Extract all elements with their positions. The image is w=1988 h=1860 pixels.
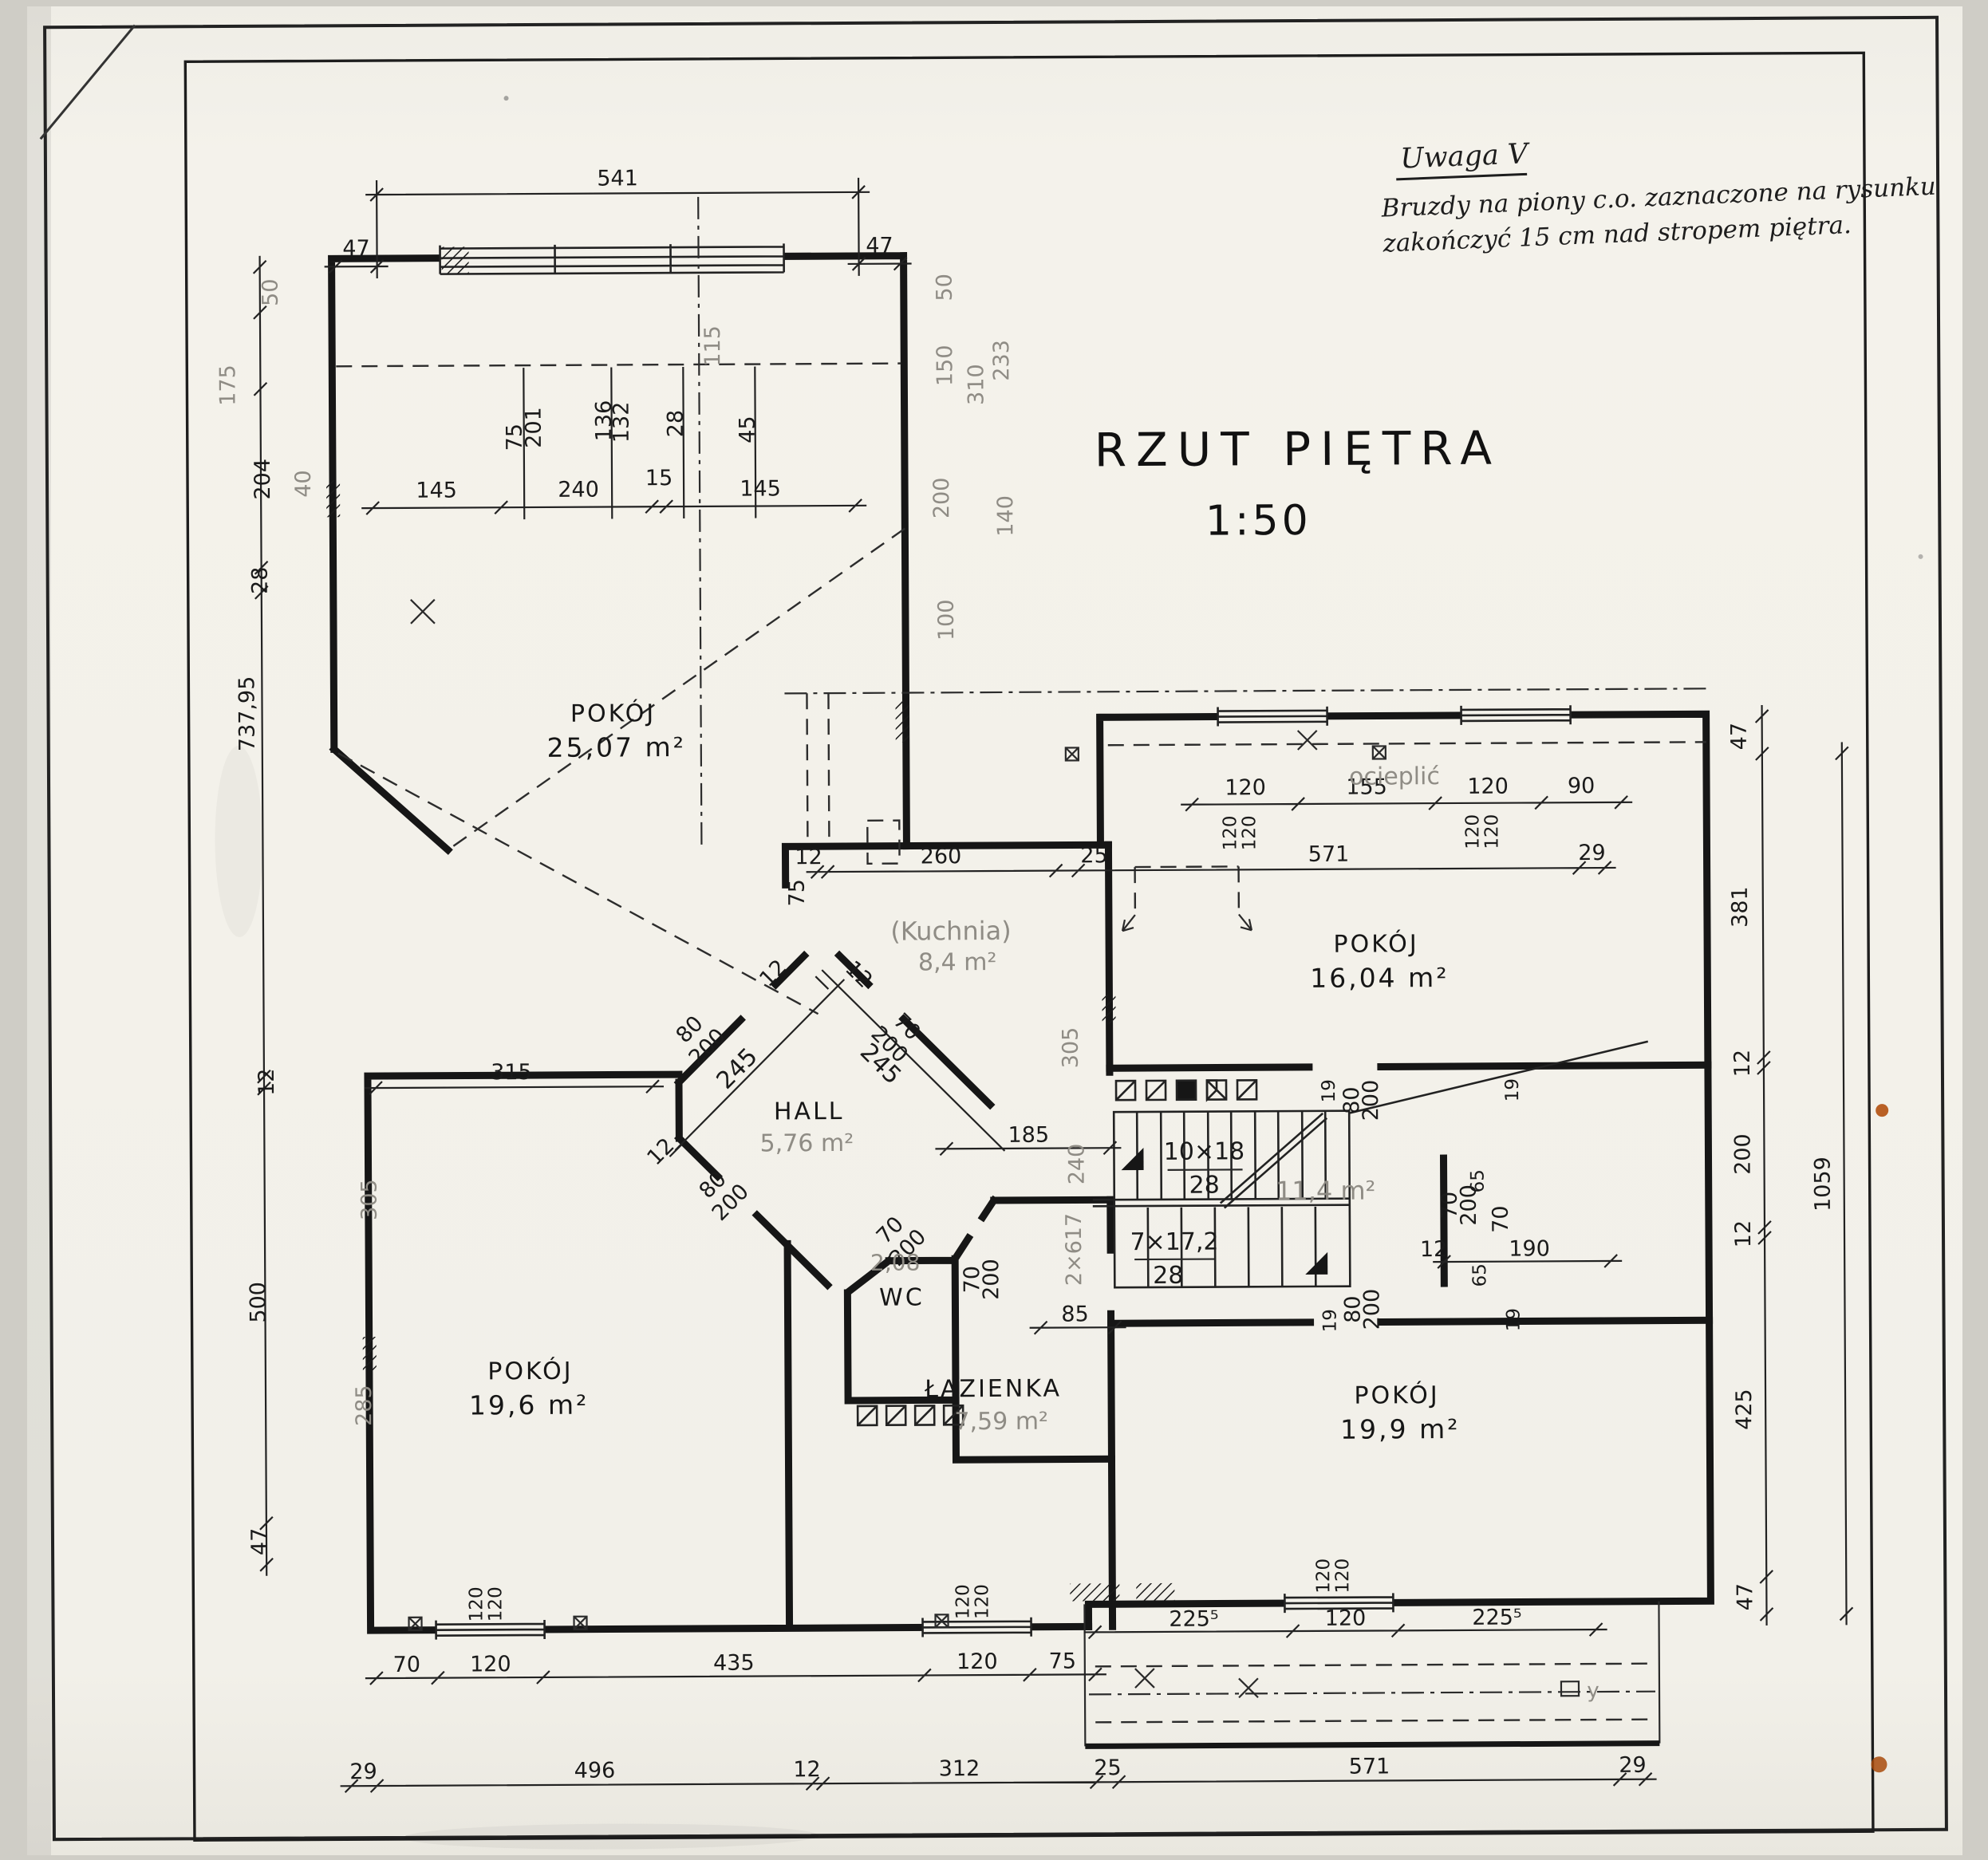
pencil-annotation: y [1587, 1679, 1599, 1703]
pencil-annotation: 285 [352, 1385, 377, 1426]
dimension-label: 19 [1503, 1308, 1524, 1331]
dimension-label: 85 [1061, 1302, 1089, 1326]
dimension-label: 28 [1153, 1262, 1183, 1290]
room-label: ŁAZIENKA [924, 1375, 1062, 1404]
dimension-label: 120 [953, 1584, 973, 1619]
room-area: 19,6 m² [469, 1389, 590, 1421]
dimension-label: 47 [342, 236, 370, 261]
dimension-label: 12 [1420, 1237, 1448, 1262]
dimension-label: 120 [1313, 1559, 1334, 1594]
dimension-label: 12 [793, 1757, 821, 1782]
dimension-label: 737,95 [235, 676, 259, 752]
dimension-label: 571 [1349, 1754, 1390, 1779]
dimension-label: 312 [939, 1756, 980, 1781]
dimension-label: 15 [645, 466, 673, 491]
dimension-label: 12 [795, 845, 822, 869]
dimension-label: 1059 [1811, 1157, 1836, 1212]
dimension-label: 19 [1319, 1309, 1340, 1332]
dimension-label: 541 [597, 166, 638, 191]
dimension-label: 425 [1732, 1389, 1757, 1430]
note-heading: Uwaga V [1399, 138, 1531, 175]
dimension-label: 204 [250, 459, 275, 500]
dimension-label: 12 [1731, 1220, 1756, 1248]
pencil-annotation: ocieplić [1349, 763, 1440, 791]
dimension-label: 435 [713, 1651, 755, 1676]
pencil-annotation: 140 [993, 495, 1018, 537]
dimension-label: 19 [1502, 1078, 1523, 1101]
dimension-label: 120 [1481, 814, 1502, 849]
dimension-label: 120 [1332, 1559, 1353, 1594]
dimension-label: 10×18 [1164, 1137, 1245, 1166]
dimension-label: 120 [1239, 815, 1260, 850]
dimension-label: 120 [466, 1586, 487, 1622]
dimension-label: 200 [1359, 1289, 1384, 1330]
room-area: 19,9 m² [1340, 1413, 1461, 1445]
dimension-label: 29 [1578, 841, 1606, 865]
dimension-label: 200 [1359, 1080, 1383, 1121]
drawing-scale: 1:50 [1205, 497, 1312, 546]
pencil-annotation: 50 [258, 278, 283, 306]
dimension-label: 47 [1733, 1583, 1757, 1611]
pencil-annotation: 233 [989, 340, 1014, 381]
pencil-annotation: 5,76 m² [760, 1129, 854, 1158]
dimension-label: 47 [1727, 723, 1752, 751]
room-label: POKÓJ [487, 1356, 573, 1386]
pencil-annotation: 50 [933, 274, 957, 301]
dimension-label: 120 [470, 1652, 511, 1677]
dimension-label: 70 [1489, 1205, 1513, 1233]
dimension-label: 120 [972, 1584, 992, 1619]
dimension-label: 260 [921, 844, 962, 869]
dimension-label: 65 [1468, 1169, 1489, 1192]
pencil-annotation: 305 [357, 1179, 382, 1220]
room-label: HALL [774, 1097, 845, 1125]
room-area: 16,04 m² [1310, 962, 1450, 994]
dimension-label: 145 [740, 476, 781, 501]
dimension-label: 12 [254, 1069, 279, 1097]
dimension-label: 75 [1049, 1649, 1077, 1673]
pencil-annotation: 7,59 m² [954, 1408, 1048, 1436]
dimension-label: 75 [785, 879, 810, 907]
room-label: POKÓJ [570, 698, 656, 728]
pencil-annotation: (Kuchnia) [890, 916, 1011, 947]
dimension-label: 65 [1469, 1263, 1490, 1287]
dimension-label: 29 [1619, 1753, 1647, 1778]
dimension-label: 120 [1225, 775, 1266, 800]
pencil-annotation: 8,4 m² [918, 948, 997, 977]
dimension-label: 12 [1730, 1050, 1755, 1078]
dimension-label: 19 [1319, 1079, 1339, 1102]
dimension-label: 315 [491, 1060, 532, 1085]
pencil-annotation: 100 [934, 599, 959, 640]
room-label: WC [879, 1283, 925, 1311]
dimension-label: 120 [1220, 815, 1241, 850]
dimension-label: 496 [574, 1759, 616, 1783]
pencil-annotation: 310 [964, 364, 988, 405]
pencil-annotation: 200 [929, 477, 954, 518]
dimension-label: 25 [1094, 1756, 1122, 1780]
dimension-label: 500 [246, 1282, 270, 1323]
scanned-floorplan-page: 5414747145240151457520113613228452042873… [0, 0, 1988, 1860]
dimension-label: 70 [393, 1653, 421, 1677]
room-label: POKÓJ [1354, 1380, 1439, 1410]
dimension-label: 225⁵ [1472, 1606, 1522, 1630]
dimension-label: 28 [664, 410, 688, 438]
dimension-label: 120 [1462, 814, 1483, 849]
dimension-label: 381 [1728, 886, 1753, 928]
pencil-annotation: 305 [1059, 1027, 1083, 1069]
dimension-label: 120 [485, 1586, 506, 1622]
dimension-label: 201 [522, 407, 546, 448]
pencil-annotation: 2×617 [1062, 1213, 1087, 1287]
room-area: 25,07 m² [547, 731, 687, 763]
room-label: POKÓJ [1333, 928, 1418, 959]
dimension-label: 29 [349, 1760, 377, 1784]
dimension-label: 185 [1008, 1123, 1049, 1148]
pencil-annotation: 175 [215, 365, 240, 406]
dimension-label: 47 [866, 234, 893, 258]
dimension-label: 200 [979, 1259, 1004, 1300]
dimension-label: 120 [1467, 774, 1509, 799]
dimension-label: 47 [247, 1528, 272, 1556]
dimension-label: 571 [1308, 842, 1350, 867]
dimension-label: 7×17,2 [1130, 1228, 1218, 1257]
dimension-label: 132 [609, 402, 634, 443]
dimension-label: 225⁵ [1169, 1607, 1219, 1632]
dimension-label: 200 [1730, 1133, 1755, 1175]
pencil-annotation: 240 [1064, 1144, 1089, 1185]
dimension-label: 28 [248, 567, 273, 595]
dimension-label: 120 [957, 1649, 998, 1674]
pencil-annotation: 40 [291, 470, 316, 498]
dimension-label: 28 [1189, 1172, 1219, 1200]
dimension-label: 120 [1325, 1606, 1367, 1631]
dimension-label: 45 [736, 416, 760, 443]
dimension-label: 240 [558, 478, 599, 502]
drawing-title: RZUT PIĘTRA [1095, 421, 1501, 478]
dimension-label: 25 [1080, 843, 1108, 868]
pencil-annotation: 2,08 [870, 1249, 921, 1275]
dimension-label: 190 [1509, 1236, 1550, 1261]
dimension-label: 145 [416, 479, 457, 503]
pencil-annotation: 150 [933, 345, 957, 386]
pencil-annotation: 115 [700, 325, 725, 367]
dimension-label: 90 [1568, 774, 1596, 798]
pencil-annotation: 11,4 m² [1276, 1175, 1376, 1206]
floorplan-drawing: 5414747145240151457520113613228452042873… [0, 0, 1988, 1860]
